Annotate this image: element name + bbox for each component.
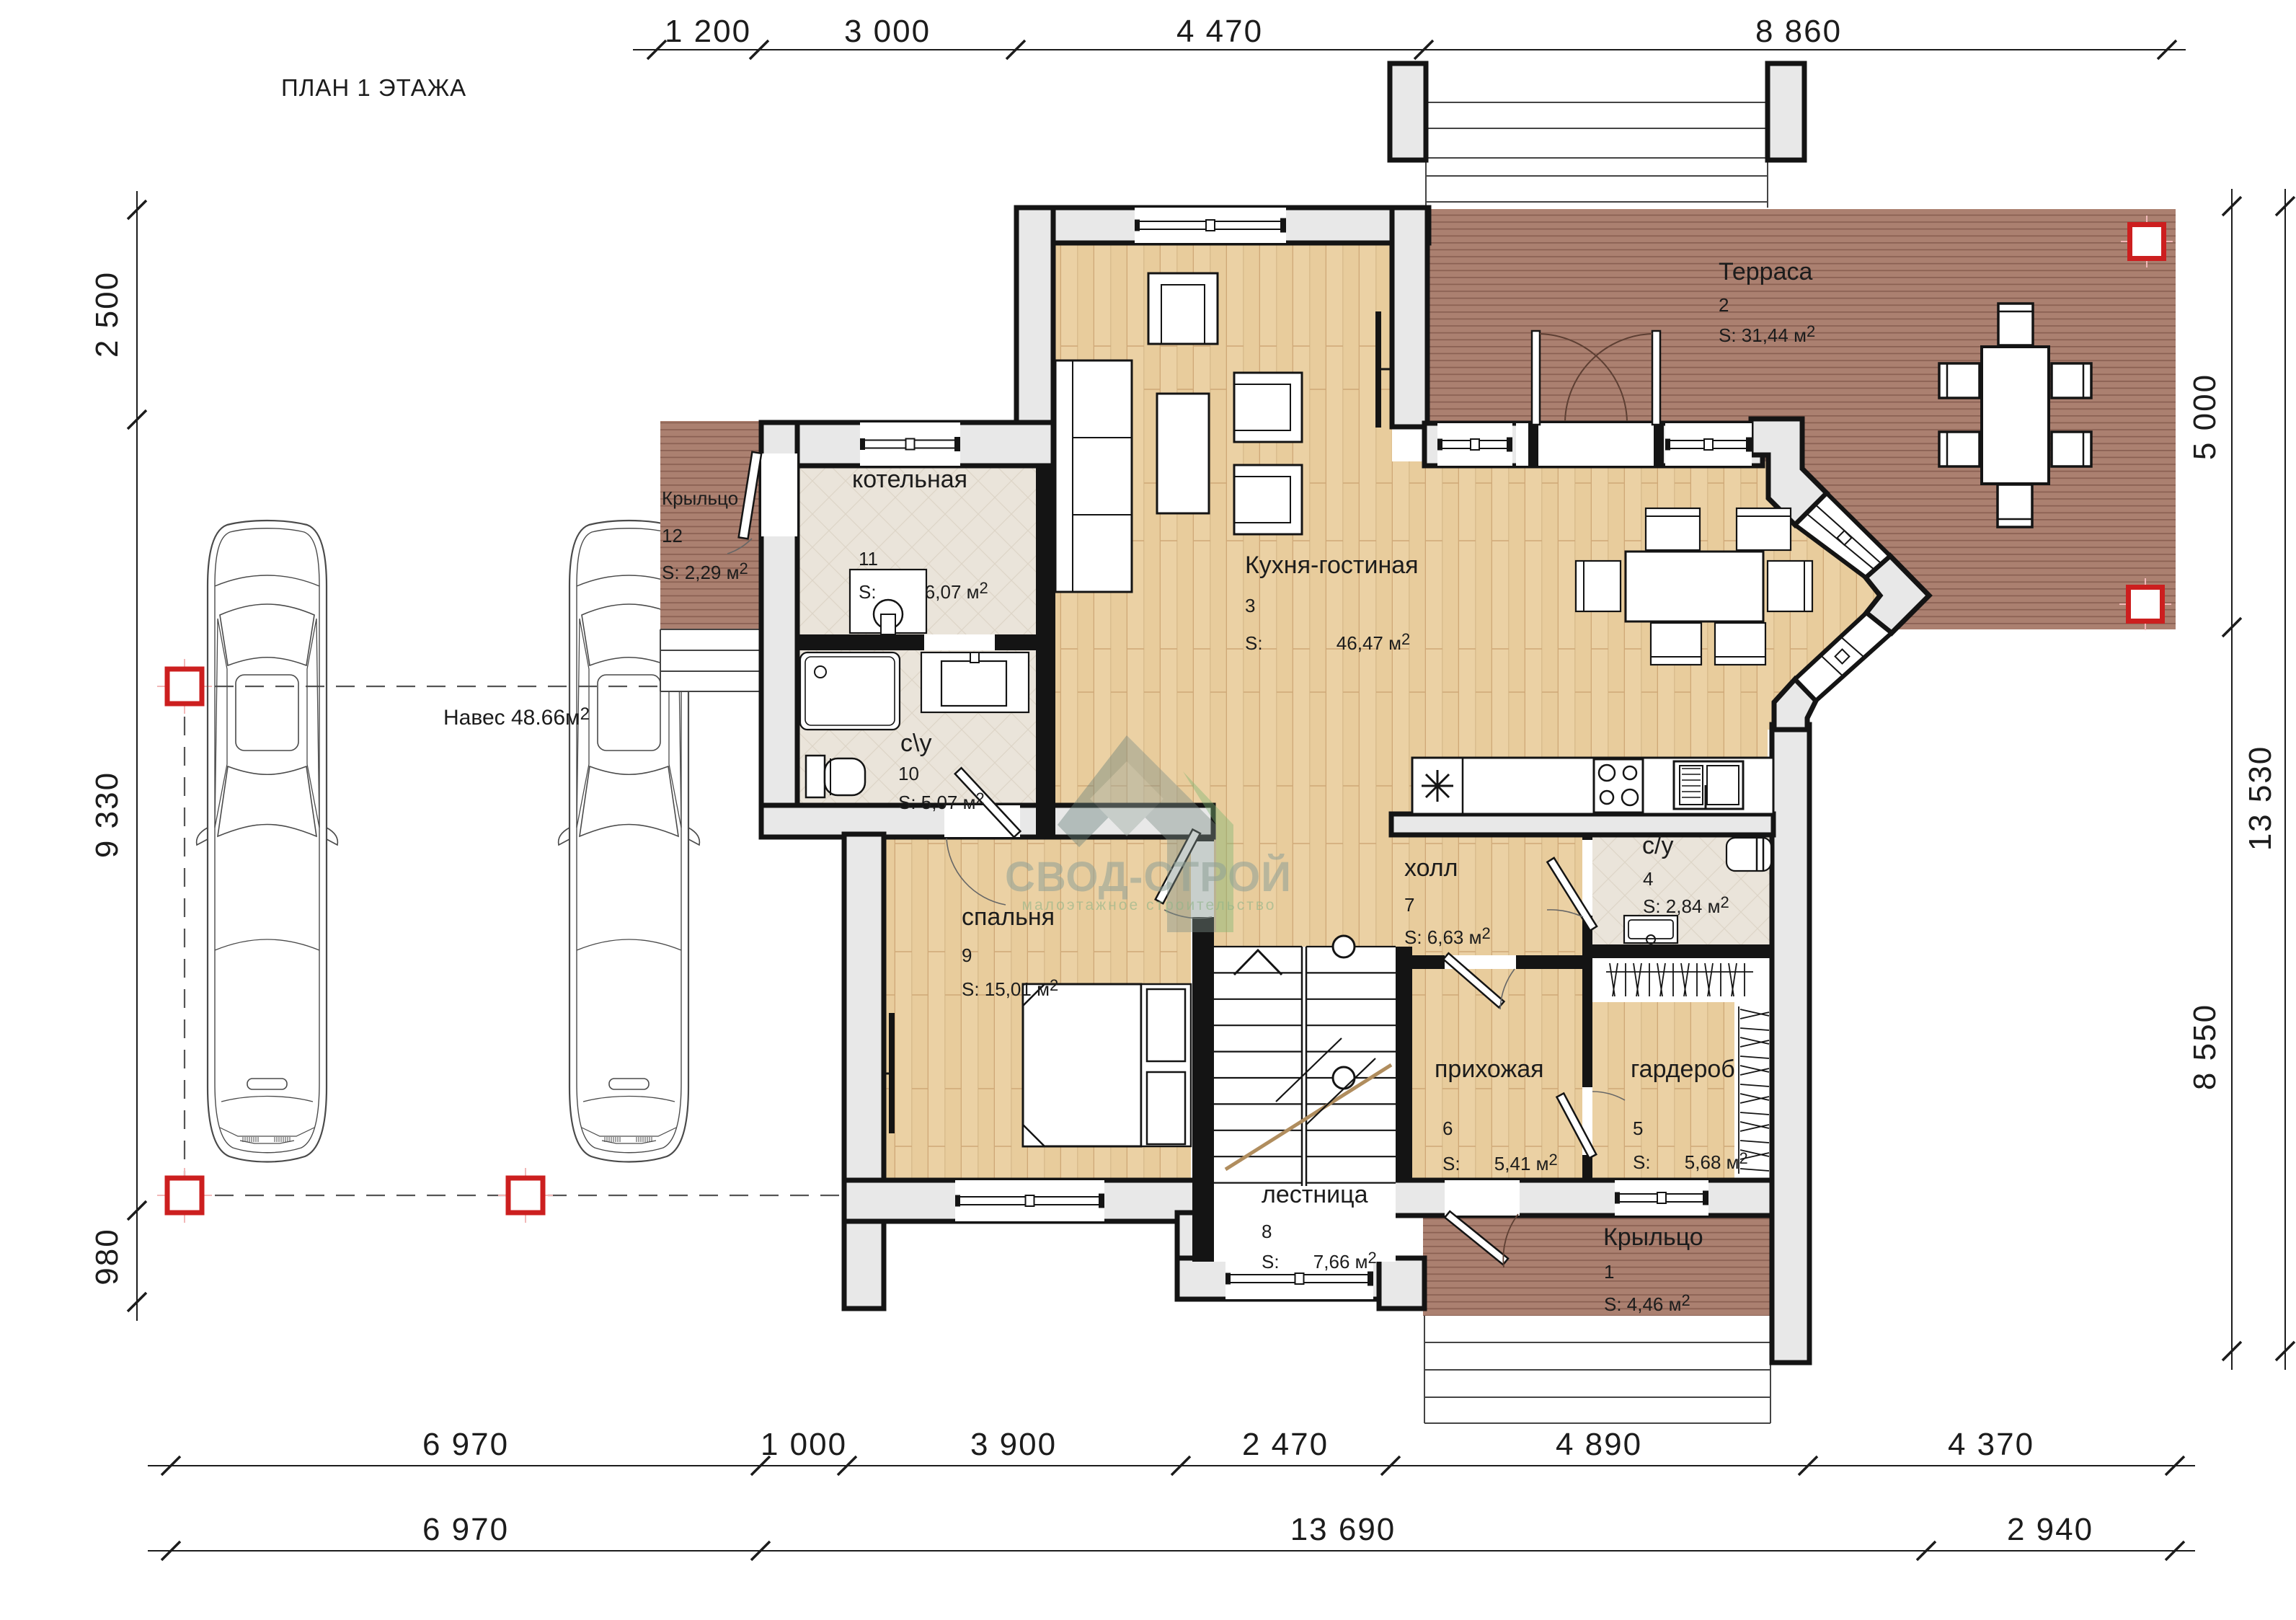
svg-text:лестница: лестница	[1262, 1181, 1368, 1208]
svg-text:13 530: 13 530	[2243, 745, 2278, 851]
svg-text:5 000: 5 000	[2187, 373, 2222, 460]
svg-text:8 550: 8 550	[2187, 1004, 2222, 1090]
svg-text:4 890: 4 890	[1556, 1427, 1642, 1462]
svg-text:котельная: котельная	[852, 466, 967, 493]
svg-text:8: 8	[1262, 1221, 1272, 1242]
svg-text:холл: холл	[1404, 854, 1458, 882]
svg-text:ПЛАН 1 ЭТАЖА: ПЛАН 1 ЭТАЖА	[281, 74, 466, 101]
svg-text:1: 1	[1604, 1261, 1614, 1283]
svg-text:Навес 48.66м2: Навес 48.66м2	[443, 704, 590, 730]
svg-text:3: 3	[1245, 595, 1255, 616]
svg-text:6 970: 6 970	[422, 1512, 509, 1547]
svg-text:5: 5	[1633, 1117, 1643, 1139]
svg-text:8 860: 8 860	[1755, 14, 1842, 49]
svg-text:10: 10	[898, 763, 919, 784]
svg-text:4 370: 4 370	[1948, 1427, 2034, 1462]
svg-text:малоэтажное строительство: малоэтажное строительство	[1022, 897, 1277, 913]
svg-text:Терраса: Терраса	[1719, 258, 1812, 286]
svg-text:980: 980	[89, 1228, 125, 1285]
svg-text:S: 15,01 м2: S: 15,01 м2	[962, 976, 1058, 1000]
svg-text:4: 4	[1643, 868, 1653, 890]
svg-text:S: 2,29 м2: S: 2,29 м2	[662, 559, 748, 583]
svg-text:3 000: 3 000	[844, 14, 931, 49]
svg-text:S: 5,41 м2: S: 5,41 м2	[1442, 1151, 1558, 1174]
svg-text:2 940: 2 940	[2007, 1512, 2093, 1547]
svg-text:СВОД-СТРОЙ: СВОД-СТРОЙ	[1005, 854, 1292, 900]
svg-text:S: 31,44 м2: S: 31,44 м2	[1719, 322, 1815, 346]
svg-text:с/у: с/у	[1642, 832, 1673, 859]
svg-text:11: 11	[859, 548, 878, 570]
svg-text:9: 9	[962, 944, 972, 966]
svg-text:4 470: 4 470	[1176, 14, 1263, 49]
svg-text:S: 2,84 м2: S: 2,84 м2	[1643, 893, 1729, 917]
svg-text:S: 7,66 м2: S: 7,66 м2	[1262, 1249, 1377, 1272]
svg-text:прихожая: прихожая	[1435, 1055, 1544, 1083]
svg-text:2: 2	[1719, 294, 1729, 316]
svg-text:1 000: 1 000	[761, 1427, 847, 1462]
svg-text:с\у: с\у	[900, 730, 931, 757]
svg-text:6: 6	[1442, 1117, 1453, 1139]
svg-text:S: 6,63 м2: S: 6,63 м2	[1404, 924, 1491, 948]
svg-text:гардероб: гардероб	[1631, 1055, 1735, 1083]
svg-text:13 690: 13 690	[1290, 1512, 1396, 1547]
svg-text:Крыльцо: Крыльцо	[1603, 1223, 1703, 1251]
svg-text:1 200: 1 200	[665, 14, 751, 49]
svg-text:3 900: 3 900	[970, 1427, 1057, 1462]
svg-text:12: 12	[662, 525, 683, 546]
svg-text:S: 4,46 м2: S: 4,46 м2	[1604, 1291, 1690, 1315]
svg-text:2 470: 2 470	[1242, 1427, 1329, 1462]
svg-text:Крыльцо: Крыльцо	[662, 487, 738, 509]
svg-text:Кухня-гостиная: Кухня-гостиная	[1245, 552, 1419, 579]
svg-text:7: 7	[1404, 894, 1414, 916]
svg-text:S: 5,68 м2: S: 5,68 м2	[1633, 1149, 1748, 1173]
svg-text:9 330: 9 330	[89, 771, 125, 858]
svg-text:2 500: 2 500	[89, 271, 125, 358]
svg-text:S: 5,07 м2: S: 5,07 м2	[898, 789, 985, 813]
svg-text:6 970: 6 970	[422, 1427, 509, 1462]
